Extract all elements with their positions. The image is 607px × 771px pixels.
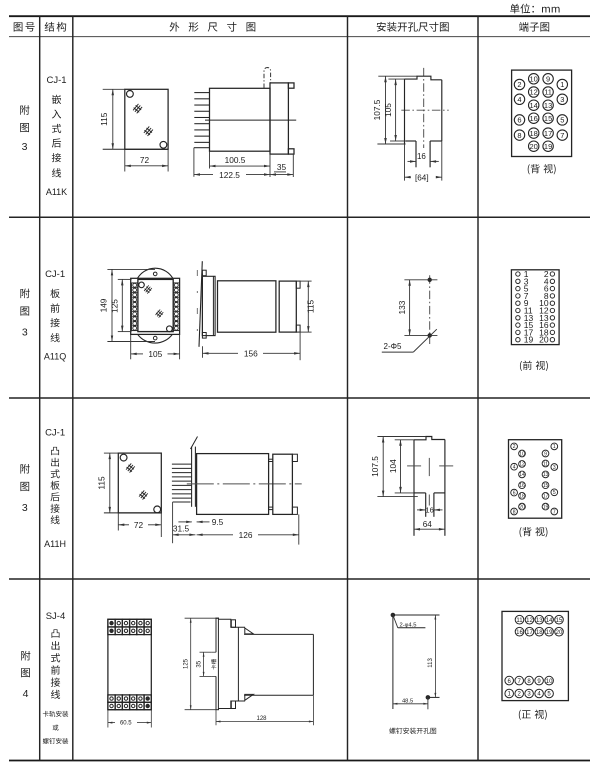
svg-text:3: 3 [553, 465, 556, 471]
svg-text:133: 133 [397, 300, 407, 314]
svg-text:18: 18 [536, 630, 543, 636]
svg-text:31.5: 31.5 [173, 524, 190, 534]
svg-text:4: 4 [23, 688, 29, 700]
svg-text:10: 10 [546, 679, 553, 685]
svg-text:7: 7 [553, 509, 556, 515]
svg-text:3: 3 [22, 502, 28, 514]
svg-text:20: 20 [519, 504, 525, 510]
svg-text:2-Φ5: 2-Φ5 [384, 342, 402, 351]
svg-text:17: 17 [526, 630, 533, 636]
svg-text:8: 8 [513, 509, 516, 515]
svg-text:5: 5 [553, 490, 556, 496]
svg-text:104: 104 [388, 459, 398, 473]
svg-text:149: 149 [99, 298, 109, 312]
svg-text:35: 35 [277, 162, 287, 172]
svg-text:72: 72 [140, 155, 150, 165]
svg-text:14: 14 [519, 472, 525, 478]
svg-text:13: 13 [543, 472, 549, 478]
svg-text:2-φ4.5: 2-φ4.5 [400, 623, 417, 629]
svg-text:125: 125 [183, 658, 189, 669]
svg-text:17: 17 [544, 129, 552, 138]
svg-text:16: 16 [530, 114, 538, 123]
svg-text:20: 20 [556, 630, 563, 636]
svg-text:16: 16 [425, 506, 433, 515]
svg-text:6: 6 [517, 116, 521, 125]
svg-text:3: 3 [22, 327, 28, 339]
svg-text:[64]: [64] [415, 173, 429, 182]
svg-text:2: 2 [517, 80, 521, 89]
svg-text:A11H: A11H [44, 539, 66, 549]
svg-text:CJ-1: CJ-1 [46, 75, 66, 86]
svg-text:20: 20 [539, 335, 549, 345]
svg-text:20: 20 [530, 142, 538, 151]
svg-text:11: 11 [544, 88, 552, 97]
svg-text:105: 105 [148, 349, 162, 359]
svg-text:19: 19 [543, 504, 549, 510]
svg-text:19: 19 [544, 142, 552, 151]
svg-text:64: 64 [423, 520, 433, 529]
svg-text:72: 72 [134, 520, 144, 530]
svg-text:2: 2 [513, 444, 516, 450]
svg-text:13: 13 [536, 618, 543, 624]
svg-text:4: 4 [513, 465, 516, 471]
svg-text:A11K: A11K [46, 187, 67, 197]
svg-text:9: 9 [544, 451, 547, 457]
svg-text:A11Q: A11Q [44, 352, 66, 362]
svg-text:19: 19 [524, 335, 534, 345]
svg-text:12: 12 [519, 462, 525, 468]
svg-text:113: 113 [428, 658, 434, 668]
svg-text:19: 19 [546, 630, 553, 636]
svg-text:60.5: 60.5 [120, 721, 132, 727]
svg-text:8: 8 [517, 131, 521, 140]
svg-text:35: 35 [197, 660, 203, 667]
svg-text:48.5: 48.5 [402, 698, 413, 704]
svg-text:156: 156 [244, 349, 258, 359]
svg-text:SJ-4: SJ-4 [46, 611, 66, 622]
svg-text:11: 11 [543, 461, 548, 467]
svg-text:4: 4 [517, 95, 521, 104]
svg-text:16: 16 [519, 483, 525, 489]
svg-text:16: 16 [516, 630, 523, 636]
svg-text:1: 1 [553, 444, 556, 450]
svg-text:5: 5 [560, 116, 564, 125]
svg-text:10: 10 [519, 451, 525, 457]
svg-text:7: 7 [560, 131, 564, 140]
svg-text:12: 12 [530, 88, 538, 97]
svg-text:10: 10 [530, 75, 538, 84]
svg-text:14: 14 [530, 101, 538, 110]
svg-text:11: 11 [516, 618, 523, 624]
svg-text:15: 15 [543, 483, 549, 489]
svg-text:3: 3 [560, 95, 564, 104]
svg-text:115: 115 [305, 300, 315, 314]
svg-text:14: 14 [546, 618, 553, 624]
svg-text:107.5: 107.5 [370, 456, 380, 477]
svg-text:16: 16 [417, 152, 426, 161]
svg-text:15: 15 [556, 618, 563, 624]
svg-text:6: 6 [513, 490, 516, 496]
svg-text:18: 18 [519, 494, 525, 500]
svg-text:115: 115 [96, 476, 106, 490]
svg-text:17: 17 [543, 494, 549, 500]
svg-text:9.5: 9.5 [212, 517, 224, 527]
svg-text:125: 125 [109, 299, 119, 313]
svg-text:9: 9 [546, 75, 550, 84]
svg-text:122.5: 122.5 [219, 170, 240, 180]
svg-text:107.5: 107.5 [372, 99, 382, 120]
svg-text:1: 1 [560, 80, 564, 89]
svg-text:128: 128 [256, 716, 267, 722]
svg-text:100.5: 100.5 [225, 155, 246, 165]
svg-text:3: 3 [22, 141, 28, 153]
svg-text:CJ-1: CJ-1 [45, 428, 65, 439]
svg-text:15: 15 [544, 114, 552, 123]
svg-text:CJ-1: CJ-1 [45, 269, 65, 280]
svg-text:126: 126 [239, 530, 253, 540]
svg-text:18: 18 [530, 129, 538, 138]
svg-text:105: 105 [383, 103, 393, 117]
svg-text:115: 115 [99, 112, 109, 126]
svg-text:12: 12 [526, 618, 533, 624]
svg-text:13: 13 [544, 101, 552, 110]
